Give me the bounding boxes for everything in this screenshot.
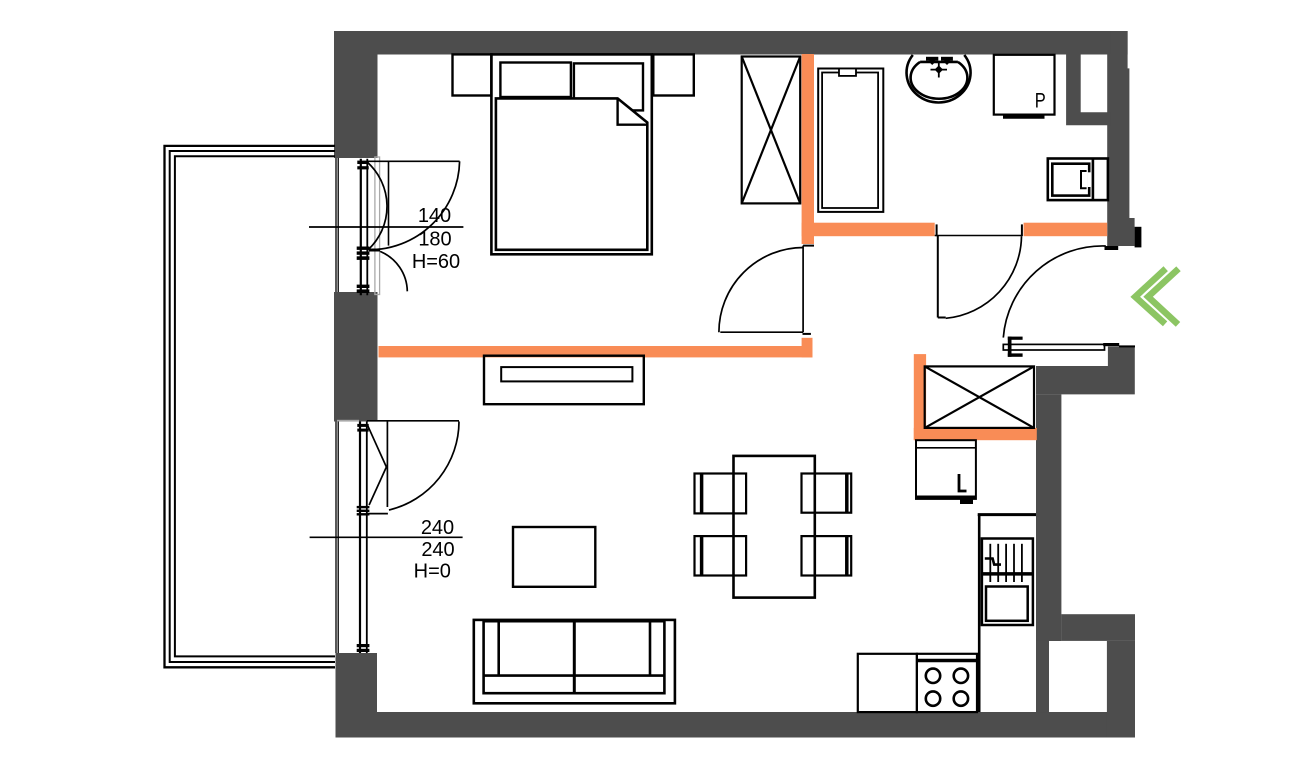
svg-text:P: P (1035, 90, 1046, 113)
svg-text:240: 240 (421, 539, 454, 561)
svg-text:H=0: H=0 (414, 561, 451, 583)
svg-text:180: 180 (418, 229, 451, 251)
svg-text:H=60: H=60 (412, 251, 460, 273)
svg-text:240: 240 (421, 517, 454, 539)
svg-text:140: 140 (418, 205, 451, 227)
